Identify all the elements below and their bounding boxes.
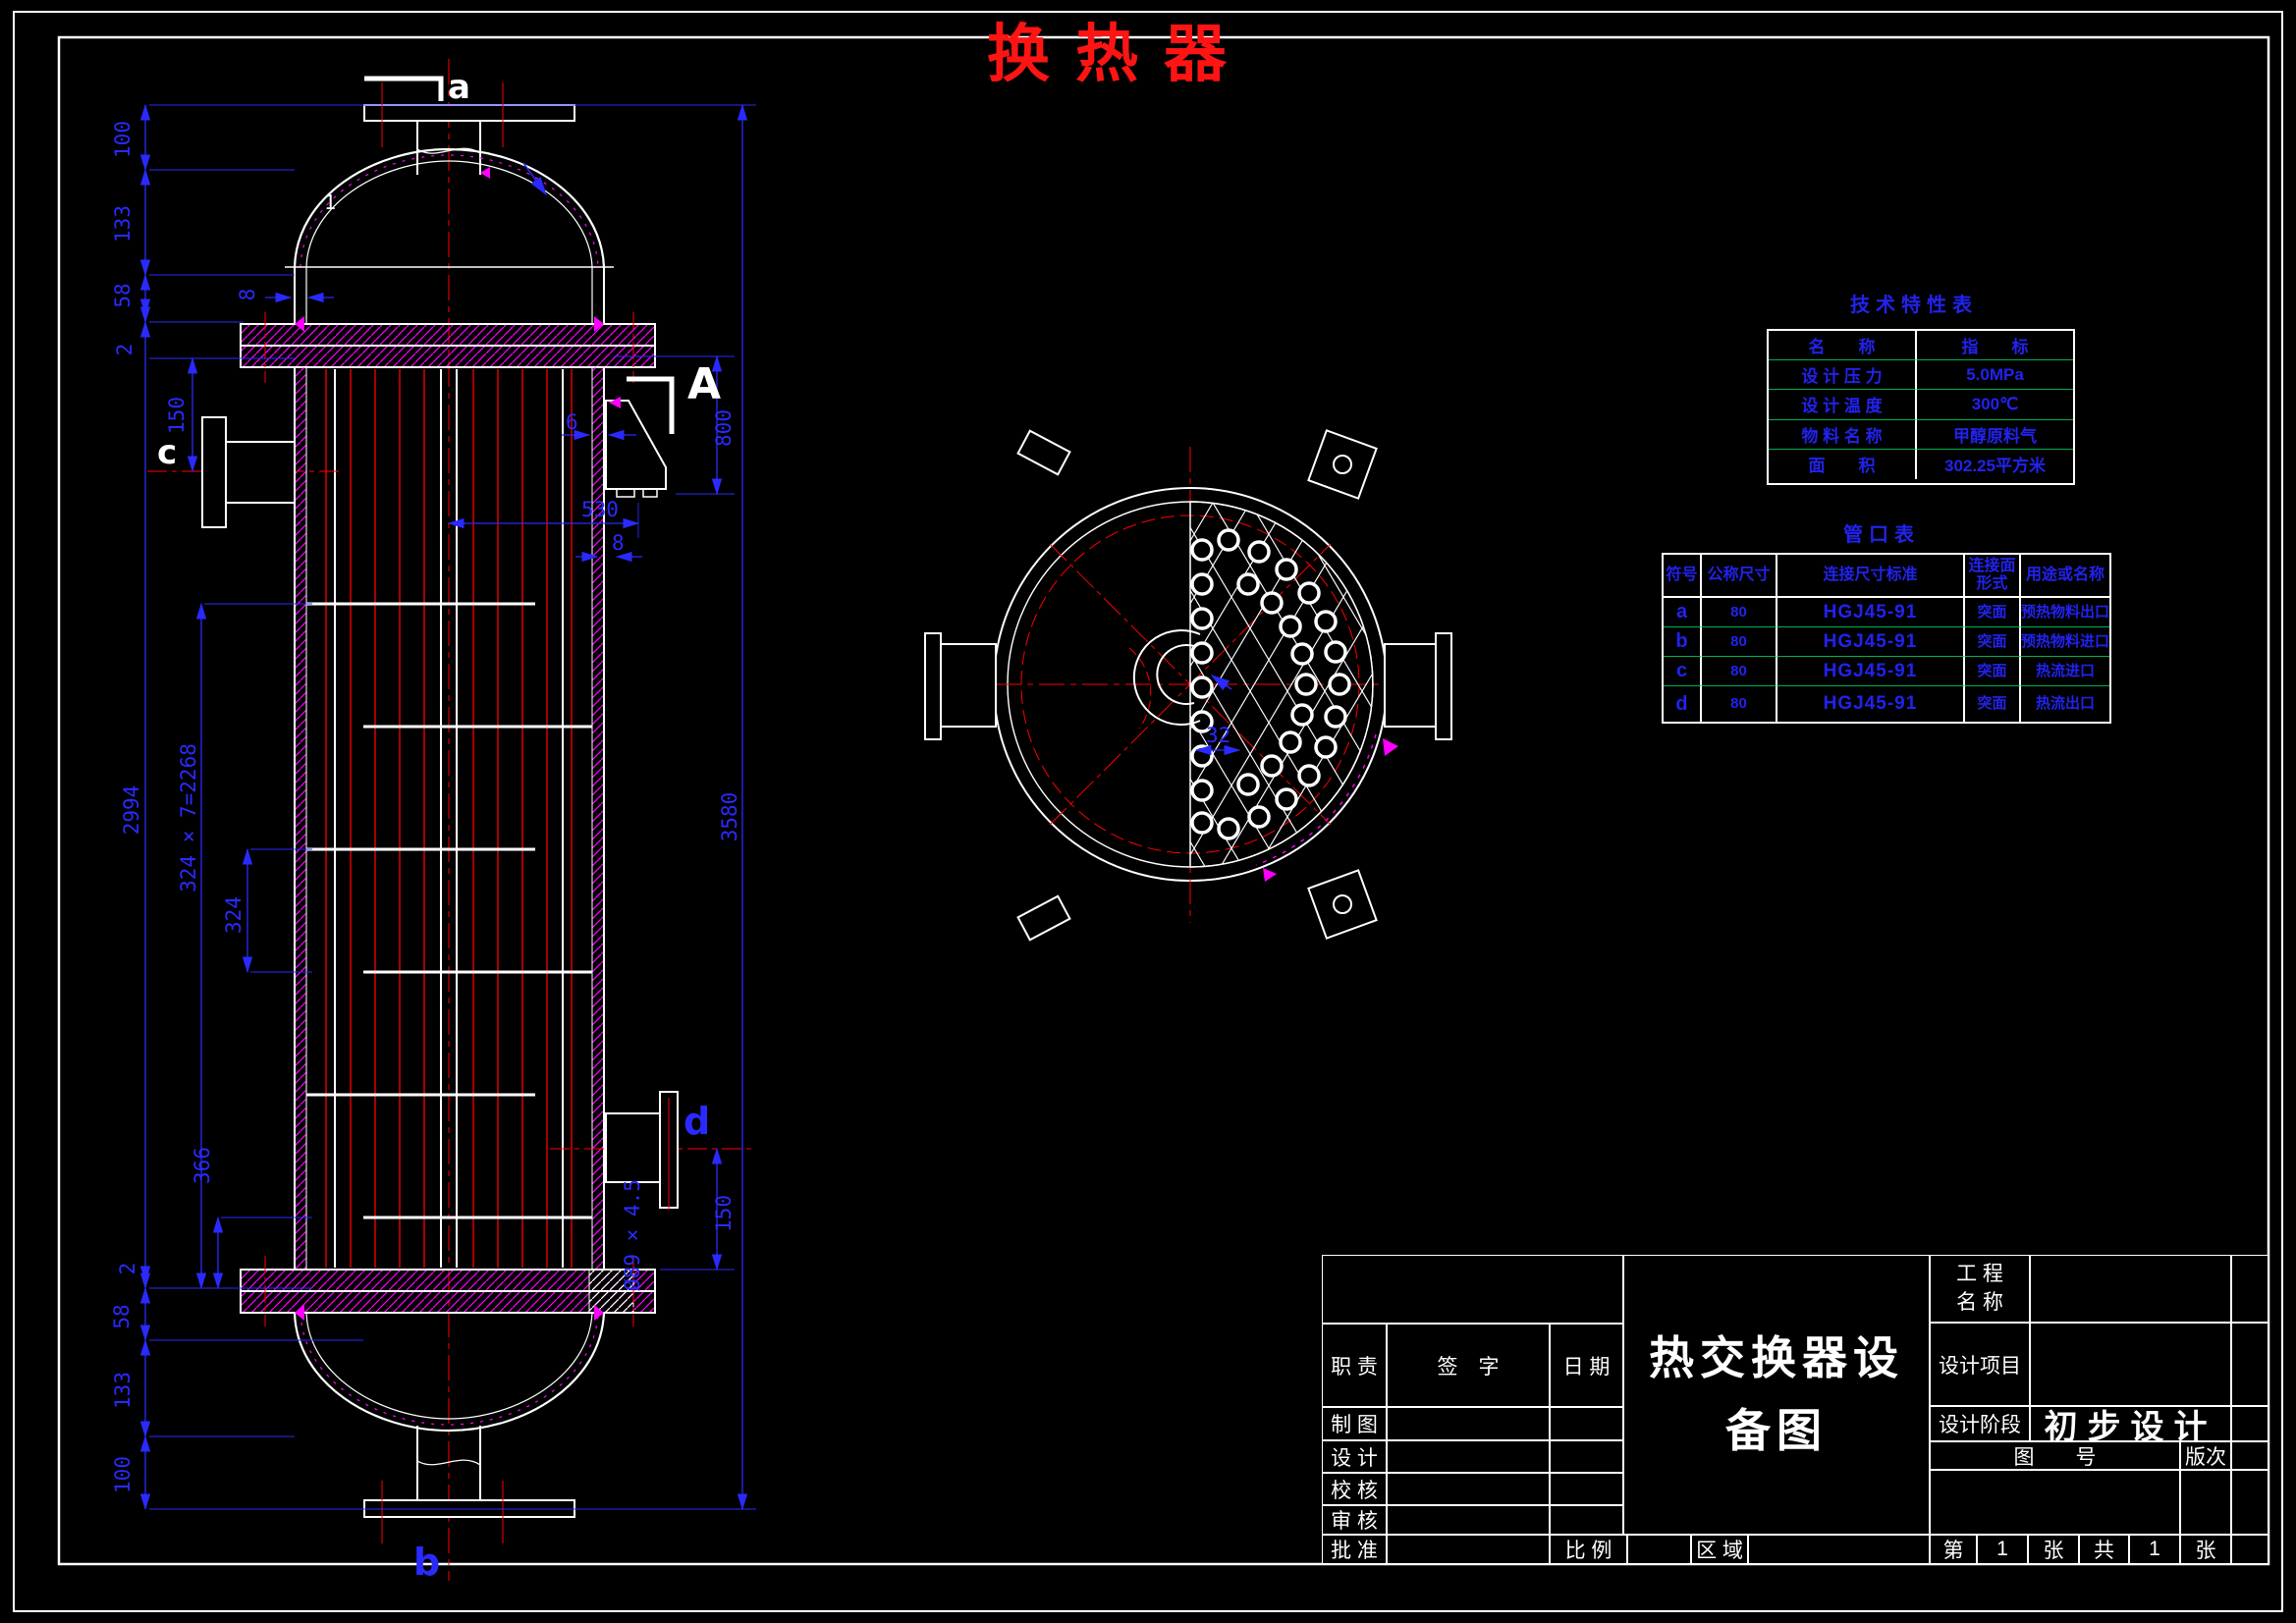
drawing-title-line2: 备图 — [1725, 1395, 1828, 1468]
empty-cell — [2231, 1406, 2269, 1441]
design-stage-label: 设计阶段 — [1930, 1406, 2030, 1441]
cell: 热流出口 — [2021, 686, 2109, 722]
dim-bot-58: 58 — [110, 1304, 134, 1328]
cell: 突面 — [1965, 627, 2021, 657]
cell: 302.25平方米 — [1917, 450, 2073, 479]
cell: 80 — [1702, 627, 1777, 657]
role-approver: 批 准 — [1322, 1535, 1387, 1564]
cad-drawing-page: 100 133 58 2 150 2994 324 × 7=2268 324 3… — [0, 0, 2296, 1623]
design-project-label: 设计项目 — [1930, 1323, 2030, 1406]
signature-cell — [1387, 1440, 1550, 1473]
cell: HGJ45-91 — [1777, 657, 1965, 686]
design-stage-value: 初步设计 — [2030, 1406, 2231, 1441]
version-value — [2180, 1470, 2231, 1535]
nozzle-label-c: c — [157, 433, 177, 472]
dim-flange-8: 8 — [236, 289, 259, 301]
dim-top-133: 133 — [111, 205, 135, 243]
tech-table: 名 称 指 标 设 计 压 力 5.0MPa 设 计 温 度 300℃ 物 料 … — [1767, 329, 2075, 485]
dim-tube-pitch-32: 32 — [1206, 724, 1230, 747]
section-marker-a: A — [687, 359, 721, 409]
weld-mark-1: 1 — [324, 190, 336, 214]
version-label: 版次 — [2180, 1441, 2231, 1470]
tech-table-title: 技术特性表 — [1850, 289, 1978, 317]
drawing-number-label: 图 号 — [1930, 1441, 2180, 1470]
nozzle-table: 符号 公称尺寸 连接尺寸标准 连接面形式 用途或名称 a 80 HGJ45-91… — [1662, 553, 2111, 724]
cell: HGJ45-91 — [1777, 627, 1965, 657]
dim-c-150: 150 — [165, 397, 189, 434]
signature-cell — [1387, 1473, 1550, 1505]
date-cell — [1550, 1440, 1623, 1473]
cell: 80 — [1702, 657, 1777, 686]
date-header: 日 期 — [1550, 1324, 1623, 1407]
dim-d-pipe: Ø89 × 4.5 — [621, 1179, 644, 1291]
dim-baffle-pitch: 324 — [222, 896, 246, 934]
dim-total-3580: 3580 — [718, 792, 741, 842]
empty-cell — [2231, 1323, 2269, 1406]
cell: d — [1664, 686, 1702, 722]
sheet-total-label: 共 — [2079, 1535, 2129, 1564]
header-cell: 用途或名称 — [2021, 555, 2109, 598]
cell: 物 料 名 称 — [1769, 420, 1917, 450]
cell: 80 — [1702, 686, 1777, 722]
cell: a — [1664, 598, 1702, 627]
zone-label: 区 域 — [1691, 1535, 1748, 1564]
nozzle-label-b: b — [413, 1541, 440, 1584]
dim-top-58: 58 — [111, 283, 135, 307]
dim-wall-6: 6 — [566, 410, 578, 434]
header-cell: 指 标 — [1917, 331, 2073, 360]
cell: 突面 — [1965, 686, 2021, 722]
header-cell: 名 称 — [1769, 331, 1917, 360]
nozzle-table-title: 管口表 — [1843, 518, 1920, 547]
page-title: 换热器 — [987, 4, 1252, 94]
sheet-no: 1 — [1977, 1535, 2028, 1564]
dim-bot-100: 100 — [111, 1456, 135, 1493]
drawing-number-value — [1930, 1470, 2180, 1535]
cell: 预热物料进口 — [2021, 627, 2109, 657]
signature-cell — [1387, 1505, 1550, 1535]
zone-value — [1748, 1535, 1930, 1564]
header-cell: 公称尺寸 — [1702, 555, 1777, 598]
cell: 突面 — [1965, 657, 2021, 686]
front-view — [147, 59, 751, 1581]
role-designer: 设 计 — [1322, 1440, 1387, 1473]
signature-header: 签 字 — [1387, 1324, 1550, 1407]
sheet-no-label: 第 — [1930, 1535, 1977, 1564]
cell: 设 计 压 力 — [1769, 360, 1917, 390]
dim-bot-2: 2 — [116, 1263, 139, 1275]
empty-cell — [2231, 1441, 2269, 1470]
role-reviewer: 审 核 — [1322, 1505, 1387, 1535]
drawing-title-line1: 热交换器设 — [1649, 1323, 1904, 1395]
dim-baffles-total: 324 × 7=2268 — [177, 743, 200, 893]
sheet-total-unit: 张 — [2180, 1535, 2231, 1564]
section-view — [925, 430, 1451, 940]
cell: 80 — [1702, 598, 1777, 627]
cell: 预热物料出口 — [2021, 598, 2109, 627]
cell: b — [1664, 627, 1702, 657]
title-block: 职 责 签 字 日 期 制 图 设 计 校 核 审 核 批 准 比 例 区 域 … — [1322, 1255, 2269, 1564]
cell: HGJ45-91 — [1777, 598, 1965, 627]
empty-cell — [1322, 1255, 1623, 1324]
cell: 热流进口 — [2021, 657, 2109, 686]
dim-wall-8: 8 — [612, 531, 625, 555]
nozzle-label-a: a — [448, 68, 470, 107]
empty-cell — [2231, 1535, 2269, 1564]
scale-label: 比 例 — [1550, 1535, 1627, 1564]
sheet-no-unit: 张 — [2028, 1535, 2079, 1564]
date-cell — [1550, 1473, 1623, 1505]
drawing-title: 热交换器设 备图 — [1623, 1255, 1930, 1535]
dim-366: 366 — [191, 1147, 214, 1184]
header-cell: 连接面形式 — [1965, 555, 2021, 598]
nozzle-label-d: d — [683, 1100, 710, 1143]
dim-bot-133: 133 — [111, 1372, 135, 1409]
dim-bracket-530: 530 — [581, 498, 619, 521]
dim-d-150: 150 — [712, 1195, 736, 1232]
project-name-value — [2030, 1255, 2231, 1323]
project-name-line1: 工 程 — [1956, 1261, 2003, 1288]
cell: c — [1664, 657, 1702, 686]
cell: 5.0MPa — [1917, 360, 2073, 390]
cell: 300℃ — [1917, 390, 2073, 419]
signature-cell — [1387, 1407, 1550, 1440]
signature-cell — [1387, 1535, 1550, 1564]
role-drafter: 制 图 — [1322, 1407, 1387, 1440]
project-name-line2: 名 称 — [1956, 1289, 2003, 1317]
dim-bracket-800: 800 — [712, 409, 736, 447]
dim-shell-2994: 2994 — [120, 785, 143, 836]
cell: 甲醇原料气 — [1917, 420, 2073, 450]
cell: HGJ45-91 — [1777, 686, 1965, 722]
duty-header: 职 责 — [1322, 1324, 1387, 1407]
cell: 面 积 — [1769, 450, 1917, 479]
role-checker: 校 核 — [1322, 1473, 1387, 1505]
sheet-total: 1 — [2129, 1535, 2180, 1564]
empty-cell — [2231, 1255, 2269, 1323]
cell: 突面 — [1965, 598, 2021, 627]
dim-top-2: 2 — [113, 344, 137, 356]
dim-top-100: 100 — [111, 121, 135, 158]
header-cell: 符号 — [1664, 555, 1702, 598]
cell: 设 计 温 度 — [1769, 390, 1917, 419]
scale-value — [1627, 1535, 1691, 1564]
date-cell — [1550, 1407, 1623, 1440]
date-cell — [1550, 1505, 1623, 1535]
design-project-value — [2030, 1323, 2231, 1406]
project-name-label: 工 程 名 称 — [1930, 1255, 2030, 1323]
header-cell: 连接尺寸标准 — [1777, 555, 1965, 598]
empty-cell — [2231, 1470, 2269, 1535]
